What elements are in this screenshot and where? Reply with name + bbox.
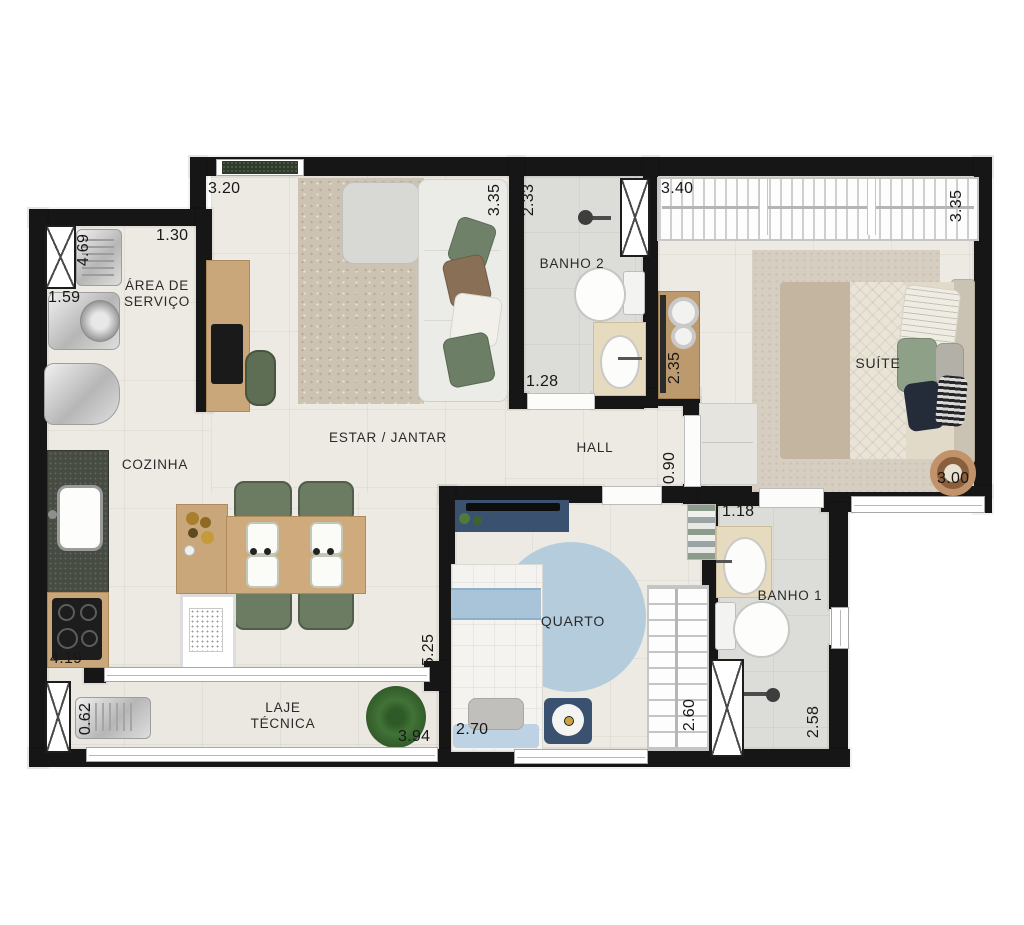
dim-banho1-right: 2.58 xyxy=(805,700,823,744)
ottoman xyxy=(342,182,420,264)
burner xyxy=(80,604,97,621)
window-living-top xyxy=(216,159,304,176)
dim-laje-bottom: 3.94 xyxy=(398,728,430,746)
sink-banho1 xyxy=(723,537,767,595)
dim-quarto-bottom: 2.70 xyxy=(456,721,488,739)
floor-plan: ÁREA DE SERVIÇO COZINHA ESTAR / JANTAR H… xyxy=(0,0,1024,925)
shower-head-banho1 xyxy=(766,688,780,702)
window-cozinha-laje xyxy=(104,667,430,682)
dim-quarto-left: 5.25 xyxy=(420,628,438,672)
cup xyxy=(264,548,271,555)
dim-estar-top: 3.20 xyxy=(208,180,240,198)
quarto-pouf-button xyxy=(564,716,574,726)
wall-banho1-right-a xyxy=(829,503,848,609)
desk-chair xyxy=(245,350,276,406)
burner xyxy=(58,604,75,621)
cup xyxy=(313,548,320,555)
shaft-servico xyxy=(45,225,76,289)
dim-banho2-height: 2.33 xyxy=(520,178,538,222)
dim-hall-door: 0.90 xyxy=(661,446,679,490)
quarto-shelf-towels xyxy=(687,504,716,560)
bottle xyxy=(186,512,199,525)
dim-cozinha-left: 4.19 xyxy=(50,650,82,668)
toilet-banho1 xyxy=(733,601,790,658)
toilet-tank-banho2 xyxy=(623,271,645,315)
door-banho2 xyxy=(527,393,595,410)
door-banho1 xyxy=(759,488,824,508)
shower-head xyxy=(578,210,593,225)
faucet-banho1 xyxy=(716,560,732,563)
cup xyxy=(327,548,334,555)
label-quarto: QUARTO xyxy=(536,613,610,629)
wall-banho1-right-b xyxy=(829,645,848,765)
tv xyxy=(466,503,560,511)
bar-cart-tray xyxy=(189,608,223,652)
wall-hall-top-a xyxy=(509,393,528,409)
label-suite: SUÍTE xyxy=(850,355,906,371)
wall-hall-door-stub-top xyxy=(683,398,700,416)
burner xyxy=(57,628,78,649)
toilet-banho2 xyxy=(574,267,626,322)
bottle xyxy=(200,517,211,528)
closet-rod xyxy=(675,589,678,747)
kitchen-faucet xyxy=(48,510,57,519)
faucet-banho2 xyxy=(618,357,642,360)
bottle xyxy=(201,531,214,544)
dim-servico-left-height: 4.69 xyxy=(75,228,93,272)
door-hall-suite xyxy=(684,415,701,487)
closet-rod xyxy=(662,206,974,209)
dim-suite-bottom: 3.00 xyxy=(937,470,969,488)
wall-laje-stub xyxy=(84,666,106,683)
place-setting xyxy=(310,555,343,588)
suite-bed-blanket xyxy=(780,282,852,459)
label-laje-tecnica: LAJE TÉCNICA xyxy=(242,700,324,732)
window-banho1 xyxy=(831,607,849,649)
closet-divider xyxy=(759,179,768,235)
place-setting xyxy=(246,555,279,588)
dryer xyxy=(44,363,120,425)
dim-quarto-closet: 2.60 xyxy=(681,693,699,737)
label-cozinha: COZINHA xyxy=(116,457,194,473)
suite-closet xyxy=(657,177,979,241)
shaft-laje xyxy=(45,681,71,753)
shaft-banho1 xyxy=(710,659,744,757)
suite-dresser xyxy=(699,403,758,485)
window-quarto-bottom xyxy=(514,749,648,764)
window-laje-bottom xyxy=(86,747,438,762)
door-quarto xyxy=(602,486,662,505)
tv-plant xyxy=(459,513,470,524)
ac-grille xyxy=(88,703,136,731)
dim-servico-left-width: 1.59 xyxy=(48,289,80,307)
label-area-servico: ÁREA DE SERVIÇO xyxy=(114,278,200,310)
dim-laje-left: 0.62 xyxy=(77,697,95,741)
wall-top xyxy=(190,157,992,176)
window-planter xyxy=(222,161,298,174)
label-estar-jantar: ESTAR / JANTAR xyxy=(326,430,450,446)
dim-banho2-door: 1.28 xyxy=(526,373,558,391)
bottle xyxy=(188,528,198,538)
quarto-bed-stripe xyxy=(451,588,541,620)
shaft-banho2 xyxy=(620,178,650,257)
dim-suite-right-height: 3.35 xyxy=(948,184,966,228)
sink-banho2 xyxy=(600,335,640,389)
kitchen-sink xyxy=(57,485,103,551)
label-banho1: BANHO 1 xyxy=(753,588,827,604)
window-suite-sill xyxy=(851,496,985,513)
suite-dresser-seam xyxy=(702,442,753,443)
dim-banho1-top: 1.18 xyxy=(722,503,754,521)
closet-divider xyxy=(867,179,876,235)
dim-estar-right-height: 3.35 xyxy=(486,178,504,222)
bowl xyxy=(184,545,195,556)
label-hall: HALL xyxy=(570,440,620,456)
wall-servico-top xyxy=(29,209,199,226)
laptop xyxy=(211,324,243,384)
quarto-closet xyxy=(647,585,709,751)
tv-plant xyxy=(473,516,482,525)
dim-suite-closet-width: 3.40 xyxy=(661,180,693,198)
suite-pillow-bw xyxy=(935,375,968,427)
dim-servico-width: 1.30 xyxy=(156,227,188,245)
cup xyxy=(250,548,257,555)
dim-suite-sideboard: 2.35 xyxy=(666,346,684,390)
label-banho2: BANHO 2 xyxy=(536,256,608,272)
burner xyxy=(81,630,98,647)
sofa-pillow-green xyxy=(442,331,497,389)
